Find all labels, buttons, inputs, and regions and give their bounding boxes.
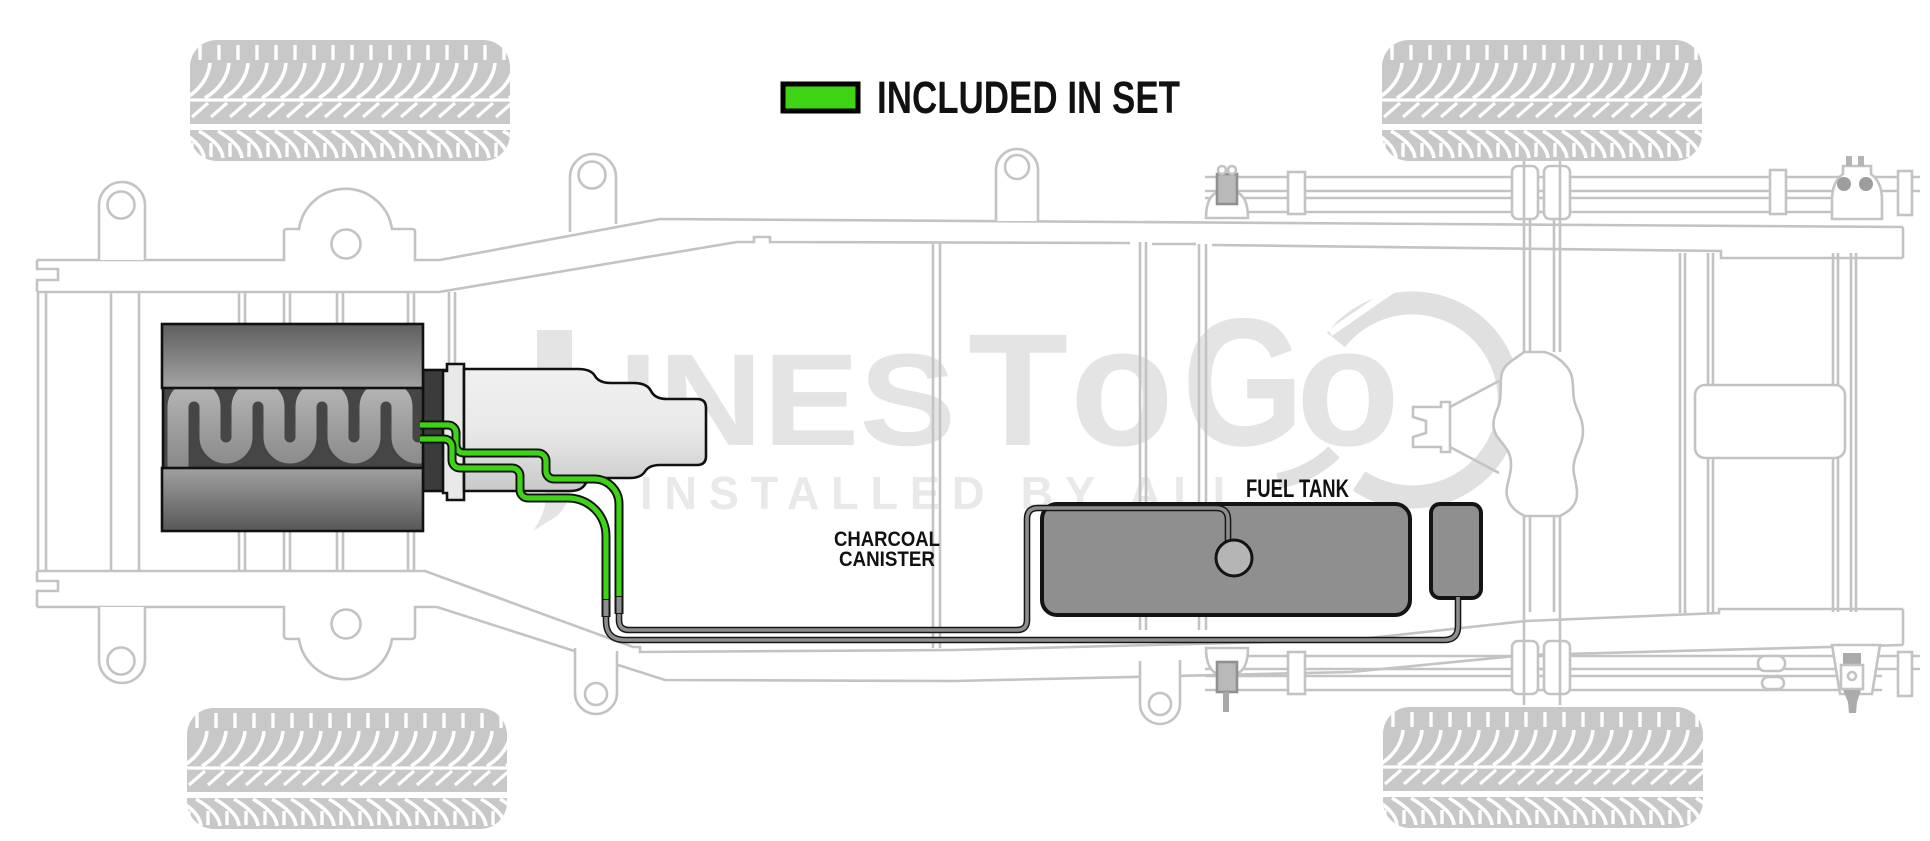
svg-text:INCLUDED IN SET: INCLUDED IN SET bbox=[877, 72, 1180, 123]
svg-text:G: G bbox=[1182, 280, 1304, 484]
svg-text:o: o bbox=[1070, 292, 1174, 482]
svg-text:T: T bbox=[968, 300, 1068, 479]
svg-text:CANISTER: CANISTER bbox=[839, 547, 935, 571]
svg-text:FUEL TANK: FUEL TANK bbox=[1246, 475, 1349, 503]
